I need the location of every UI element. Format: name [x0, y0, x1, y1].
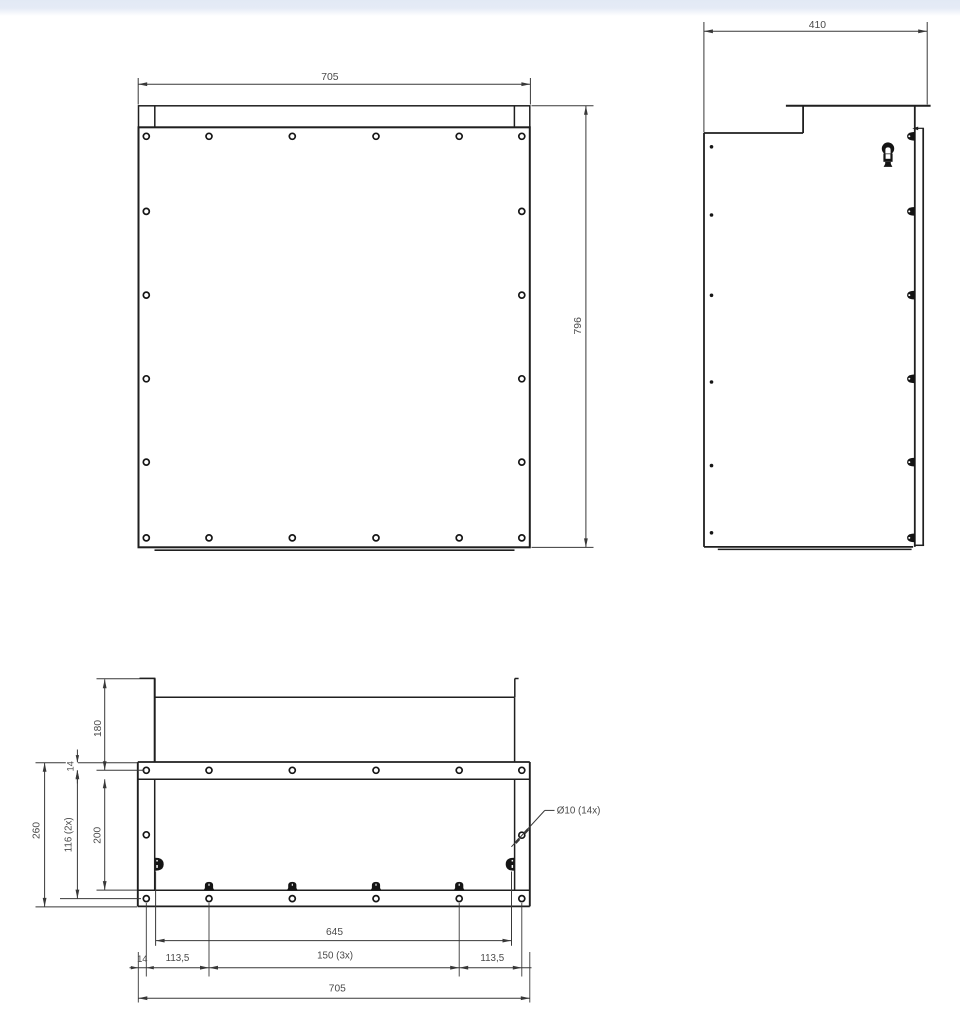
svg-text:796: 796	[573, 317, 584, 335]
svg-text:180: 180	[93, 720, 104, 737]
svg-text:14: 14	[65, 761, 76, 771]
svg-text:116 (2x): 116 (2x)	[64, 817, 75, 852]
svg-text:410: 410	[809, 20, 827, 31]
svg-text:113,5: 113,5	[480, 953, 504, 964]
svg-text:Ø10 (14x): Ø10 (14x)	[557, 806, 601, 817]
svg-text:150 (3x): 150 (3x)	[317, 951, 353, 962]
svg-text:705: 705	[321, 72, 339, 83]
svg-text:200: 200	[92, 826, 103, 843]
svg-text:705: 705	[329, 984, 346, 995]
svg-text:260: 260	[32, 822, 43, 839]
svg-text:113,5: 113,5	[166, 953, 190, 964]
svg-text:14: 14	[137, 953, 147, 964]
svg-text:645: 645	[326, 927, 343, 938]
